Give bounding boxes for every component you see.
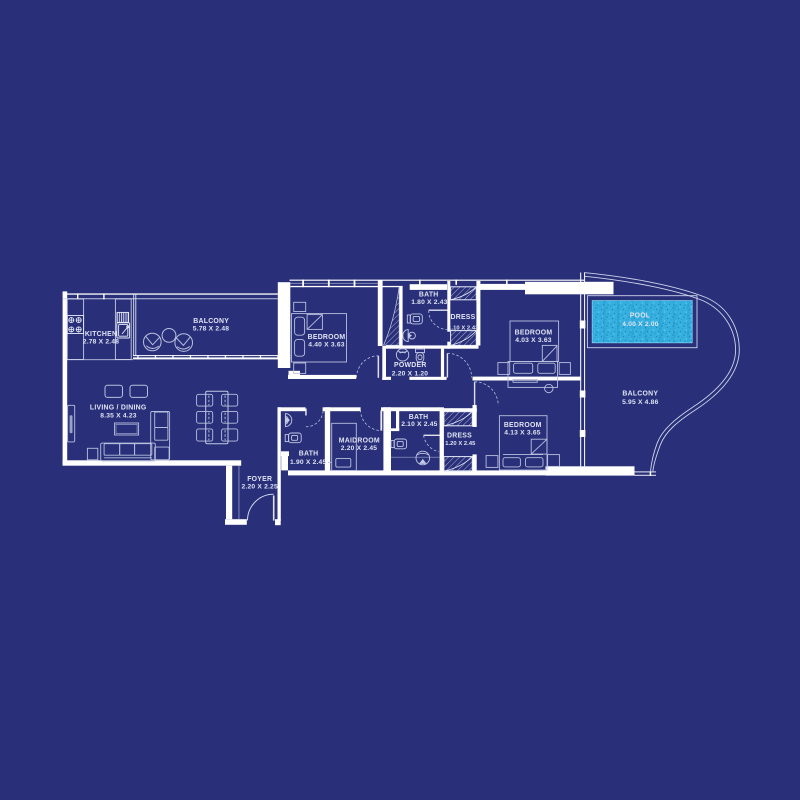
svg-text:4.13 X 3.65: 4.13 X 3.65 <box>504 430 540 437</box>
svg-text:DRESS: DRESS <box>451 314 476 321</box>
svg-text:BATH: BATH <box>409 414 429 421</box>
svg-text:5.78 X 2.48: 5.78 X 2.48 <box>193 326 229 333</box>
svg-text:1.80 X 2.43: 1.80 X 2.43 <box>411 299 447 306</box>
svg-text:4.03 X 3.63: 4.03 X 3.63 <box>515 337 551 344</box>
svg-text:BATH: BATH <box>419 291 439 298</box>
svg-text:BALCONY: BALCONY <box>193 318 229 325</box>
svg-text:LIVING / DINING: LIVING / DINING <box>90 405 147 412</box>
svg-text:2.20 X 1.20: 2.20 X 1.20 <box>392 370 428 377</box>
svg-text:BEDROOM: BEDROOM <box>504 422 542 429</box>
svg-text:MAIDROOM: MAIDROOM <box>339 437 380 444</box>
svg-text:2.78 X 2.48: 2.78 X 2.48 <box>83 338 119 345</box>
svg-text:KITCHEN: KITCHEN <box>85 331 117 338</box>
svg-text:BEDROOM: BEDROOM <box>515 329 553 336</box>
svg-text:BALCONY: BALCONY <box>622 391 658 398</box>
svg-text:POOL: POOL <box>630 313 651 320</box>
svg-text:BEDROOM: BEDROOM <box>308 334 346 341</box>
svg-text:1.90 X 2.45: 1.90 X 2.45 <box>290 459 326 466</box>
svg-text:4.40 X 3.63: 4.40 X 3.63 <box>308 342 344 349</box>
svg-text:POWDER: POWDER <box>394 362 427 369</box>
svg-text:2.20 X 2.25: 2.20 X 2.25 <box>241 484 277 491</box>
svg-text:BATH: BATH <box>299 450 319 457</box>
svg-text:2.20 X 2.45: 2.20 X 2.45 <box>341 445 377 452</box>
svg-text:2.10 X 2.45: 2.10 X 2.45 <box>401 421 437 428</box>
svg-text:1.10 X 2.43: 1.10 X 2.43 <box>448 326 479 332</box>
svg-text:1.20 X 2.45: 1.20 X 2.45 <box>445 441 476 447</box>
svg-text:8.35 X 4.23: 8.35 X 4.23 <box>100 413 136 420</box>
svg-text:4.00 X 2.00: 4.00 X 2.00 <box>622 321 658 328</box>
svg-text:FOYER: FOYER <box>247 476 272 483</box>
svg-text:5.95 X 4.86: 5.95 X 4.86 <box>622 399 658 406</box>
svg-text:DRESS: DRESS <box>447 432 472 439</box>
